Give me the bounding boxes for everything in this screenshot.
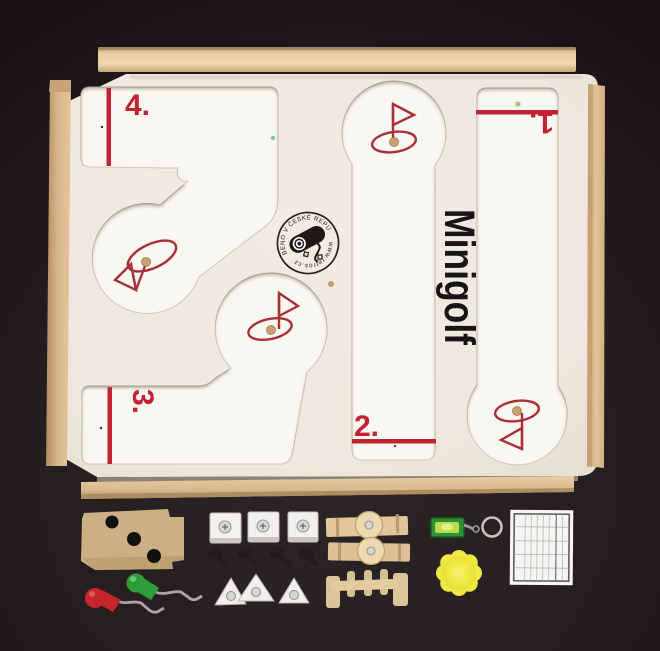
svg-text:4.: 4. xyxy=(125,89,150,122)
svg-text:1.: 1. xyxy=(529,106,554,139)
svg-text:2.: 2. xyxy=(354,410,379,443)
svg-text:3.: 3. xyxy=(126,389,159,414)
svg-text:Minigolf: Minigolf xyxy=(435,209,483,346)
